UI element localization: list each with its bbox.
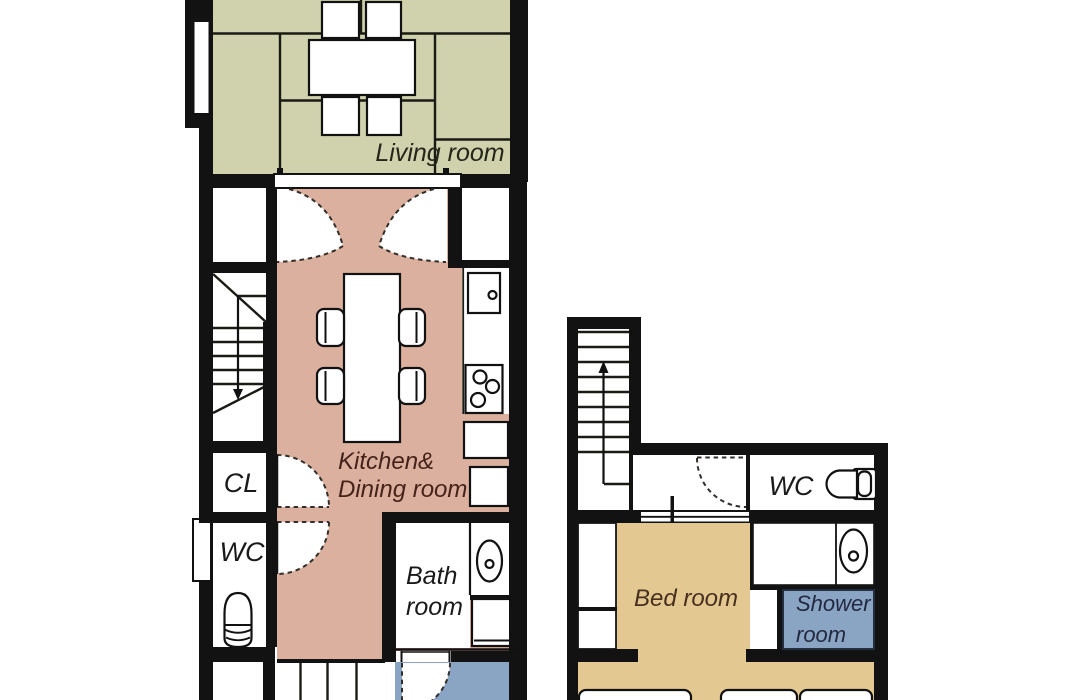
- svg-text:Bath: Bath: [406, 562, 457, 590]
- svg-text:Kitchen&: Kitchen&: [338, 448, 434, 475]
- svg-text:room: room: [406, 593, 463, 621]
- svg-text:WC: WC: [769, 471, 814, 501]
- svg-text:CL: CL: [224, 468, 259, 498]
- svg-text:Living room: Living room: [375, 139, 504, 167]
- svg-text:Dining room: Dining room: [338, 476, 467, 503]
- svg-text:WC: WC: [220, 537, 265, 567]
- svg-text:Shower: Shower: [796, 591, 872, 616]
- svg-text:room: room: [796, 622, 846, 647]
- svg-text:Bed room: Bed room: [634, 585, 738, 612]
